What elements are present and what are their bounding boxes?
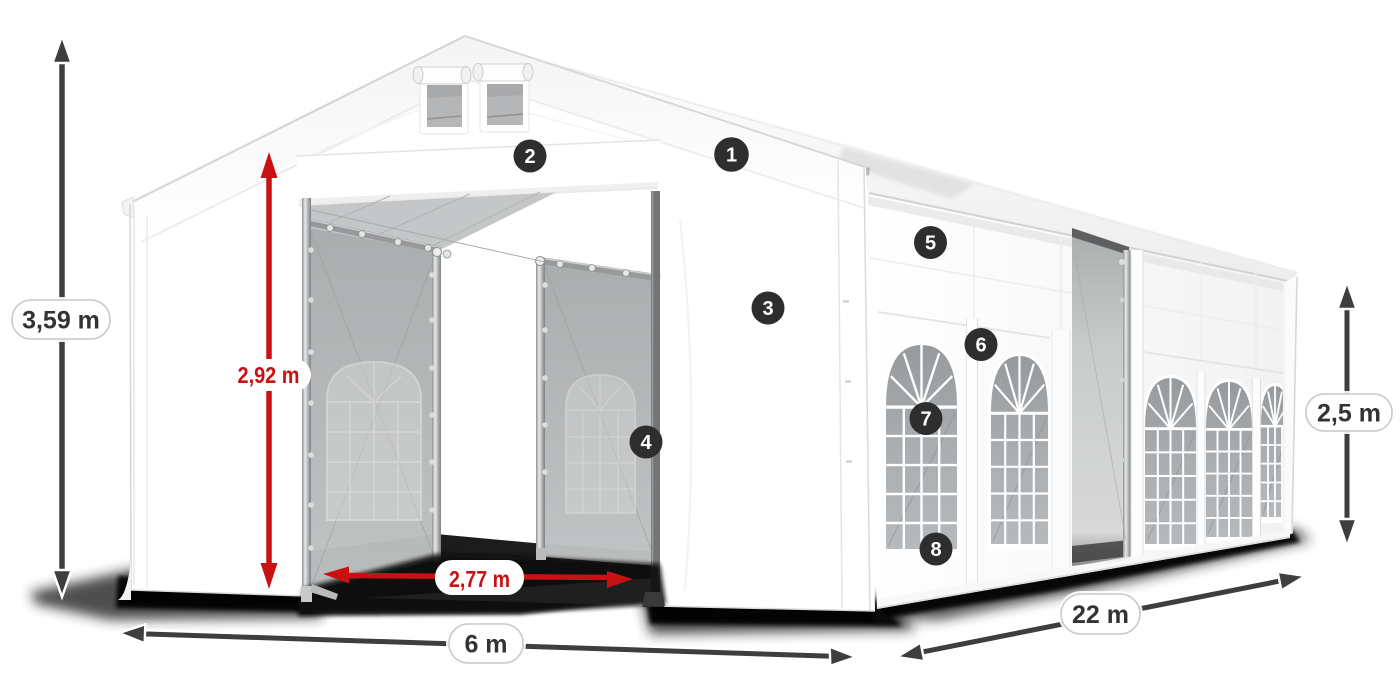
svg-text:8: 8: [930, 539, 941, 561]
svg-text:4: 4: [640, 432, 652, 454]
svg-text:2,77 m: 2,77 m: [449, 566, 510, 592]
svg-text:6: 6: [975, 335, 986, 357]
svg-text:7: 7: [920, 409, 931, 431]
svg-text:3: 3: [762, 298, 773, 320]
svg-text:22 m: 22 m: [1072, 601, 1129, 629]
svg-text:5: 5: [925, 233, 936, 255]
svg-text:2,92 m: 2,92 m: [238, 362, 300, 388]
svg-text:2: 2: [524, 146, 535, 168]
svg-text:6 m: 6 m: [464, 631, 507, 659]
svg-text:3,59 m: 3,59 m: [22, 307, 100, 335]
svg-text:2,5 m: 2,5 m: [1317, 400, 1381, 428]
svg-text:1: 1: [726, 145, 737, 167]
